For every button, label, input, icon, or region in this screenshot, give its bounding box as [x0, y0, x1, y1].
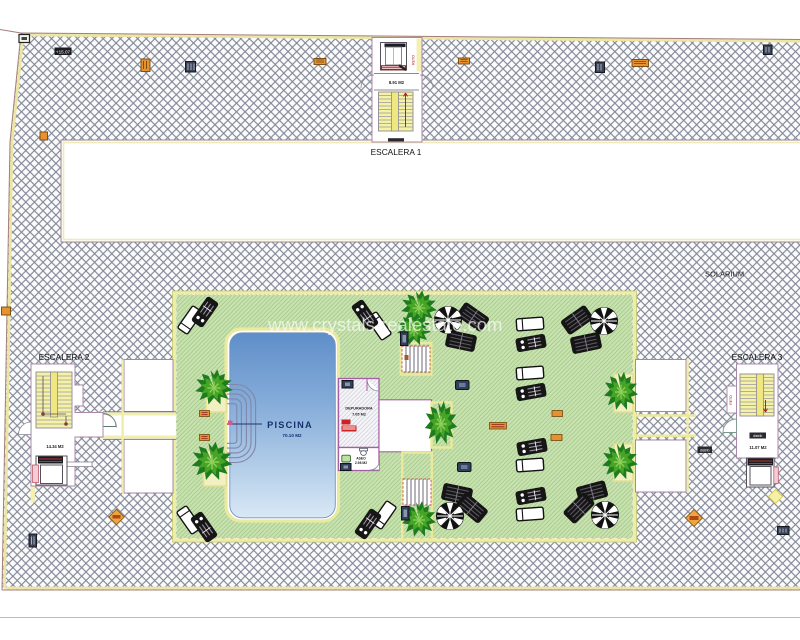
svg-text:RETO: RETO	[412, 55, 416, 65]
svg-text:2.98 M2: 2.98 M2	[355, 461, 367, 465]
svg-text:11.07 M2: 11.07 M2	[749, 445, 767, 450]
svg-text:70.10 M2: 70.10 M2	[282, 433, 302, 438]
svg-text:distrib: distrib	[753, 434, 762, 438]
svg-text:DEPURADORA: DEPURADORA	[345, 407, 372, 411]
svg-text:8.91 M2: 8.91 M2	[389, 80, 405, 85]
svg-text:ESCALERA 3: ESCALERA 3	[732, 352, 783, 362]
svg-text:SOLARIUM: SOLARIUM	[705, 270, 744, 279]
svg-text:+15.07: +15.07	[56, 49, 71, 54]
svg-text:distrib: distrib	[700, 449, 710, 453]
svg-text:7.05 M2: 7.05 M2	[352, 413, 366, 417]
svg-text:ESCALERA 2: ESCALERA 2	[39, 352, 90, 362]
svg-text:ASEO: ASEO	[356, 457, 366, 461]
svg-text:PISCINA: PISCINA	[267, 420, 313, 430]
svg-text:RETO: RETO	[729, 395, 733, 405]
svg-text:www.crystals-realestate.com: www.crystals-realestate.com	[267, 314, 502, 335]
svg-text:14.34 M2: 14.34 M2	[46, 444, 64, 449]
svg-text:ESCALERA 1: ESCALERA 1	[371, 147, 422, 157]
